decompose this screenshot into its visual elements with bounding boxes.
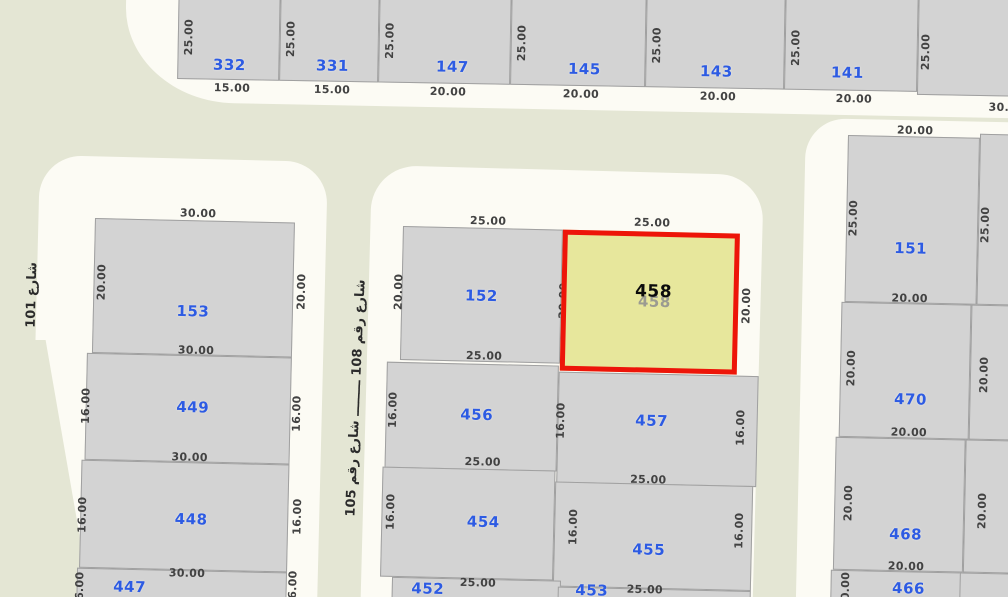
parcel-151[interactable] (845, 135, 980, 305)
dimension-label: 20.00 (891, 425, 928, 439)
dimension-label: 20.00 (841, 485, 855, 522)
dimension-label: 15.00 (214, 81, 251, 95)
dimension-label: 16.00 (75, 496, 89, 533)
dimension-label: 25.00 (284, 21, 298, 58)
dimension-label: 25.00 (650, 27, 664, 64)
dimension-label: 30.00 (169, 566, 206, 580)
dimension-label: 20.00 (977, 357, 991, 394)
dimension-label: 25.00 (515, 25, 529, 62)
dimension-label: 20.00 (891, 291, 928, 305)
parcel-number-label: 449 (176, 398, 209, 417)
parcel-number-label: 455 (632, 540, 665, 559)
parcel-number-label: 147 (436, 57, 469, 76)
cadastral-map-canvas[interactable]: 33233114714514314125.0025.0025.0025.0025… (0, 0, 1008, 597)
parcel-number-label: 448 (175, 510, 208, 529)
parcel-153[interactable] (92, 218, 295, 358)
parcel-number-label: 456 (460, 405, 493, 424)
dimension-label: 20.00 (888, 559, 925, 573)
dimension-label: 25.00 (464, 455, 501, 469)
dimension-label: 25.00 (919, 34, 933, 71)
dimension-label: 20.00 (392, 274, 406, 311)
dimension-label: 16.00 (79, 388, 93, 425)
parcel-number-label: 468 (889, 525, 922, 544)
dimension-label: 20.00 (897, 124, 934, 138)
dimension-label: 25.00 (634, 216, 671, 230)
dimension-label: 30.00 (988, 101, 1008, 115)
dimension-label: 25.00 (460, 576, 497, 590)
parcel-number-label: 453 (575, 581, 608, 597)
dimension-label: 25.00 (630, 473, 667, 487)
dimension-label: 20.00 (975, 493, 989, 530)
dimension-label: 20.00 (839, 572, 853, 597)
dimension-label: 25.00 (466, 349, 503, 363)
dimension-label: 16.00 (734, 409, 748, 446)
dimension-label: 16.00 (566, 509, 580, 546)
dimension-label: 25.00 (470, 214, 507, 228)
dimension-label: 20.00 (844, 350, 858, 387)
dimension-label: 25.00 (789, 30, 803, 67)
parcel-number-label: 466 (892, 579, 925, 597)
dimension-label: 16.00 (286, 570, 300, 597)
parcel-number-label: 447 (113, 578, 146, 597)
dimension-label: 25.00 (846, 200, 860, 237)
dimension-label: 16.00 (290, 498, 304, 535)
dimension-label: 16.00 (732, 512, 746, 549)
dimension-label: 16.00 (290, 395, 304, 432)
dimension-label: 16.00 (384, 493, 398, 530)
dimension-label: 25.00 (627, 583, 664, 597)
parcel-number-label: 457 (635, 411, 668, 430)
dimension-label: 16.00 (554, 402, 568, 439)
dimension-label: 25.00 (978, 207, 992, 244)
parcel-number-label: 458 (635, 281, 672, 302)
parcel-number-label: 143 (700, 62, 733, 81)
parcel-number-label: 153 (176, 302, 209, 321)
parcel-number-label: 454 (467, 513, 500, 532)
parcel-edge[interactable] (956, 572, 1008, 597)
dimension-label: 16.00 (73, 571, 87, 597)
dimension-label: 20.00 (294, 273, 308, 310)
dimension-label: 16.00 (386, 392, 400, 429)
parcel-455[interactable] (553, 482, 753, 591)
parcel-470[interactable] (839, 302, 972, 440)
dimension-label: 20.00 (739, 288, 753, 325)
parcel-number-label: 331 (316, 56, 349, 75)
parcel-number-label: 470 (894, 390, 927, 409)
dimension-label: 25.00 (182, 19, 196, 56)
street-label-street-101: شارع 101 (24, 262, 41, 328)
parcel-number-label: 152 (465, 286, 498, 305)
parcel-number-label: 151 (894, 239, 927, 258)
parcel-number-label: 332 (213, 56, 246, 75)
dimension-label: 20.00 (430, 85, 467, 99)
parcel-number-label: 452 (411, 579, 444, 597)
dimension-label: 20.00 (700, 90, 737, 104)
dimension-label: 30.00 (171, 450, 208, 464)
parcel-number-label: 141 (831, 63, 864, 82)
dimension-label: 25.00 (383, 22, 397, 59)
dimension-label: 20.00 (563, 87, 600, 101)
dimension-label: 20.00 (836, 92, 873, 106)
parcel-number-label: 145 (568, 60, 601, 79)
dimension-label: 30.00 (178, 343, 215, 357)
dimension-label: 20.00 (95, 264, 109, 301)
dimension-label: 30.00 (180, 206, 217, 220)
dimension-label: 15.00 (314, 83, 351, 97)
